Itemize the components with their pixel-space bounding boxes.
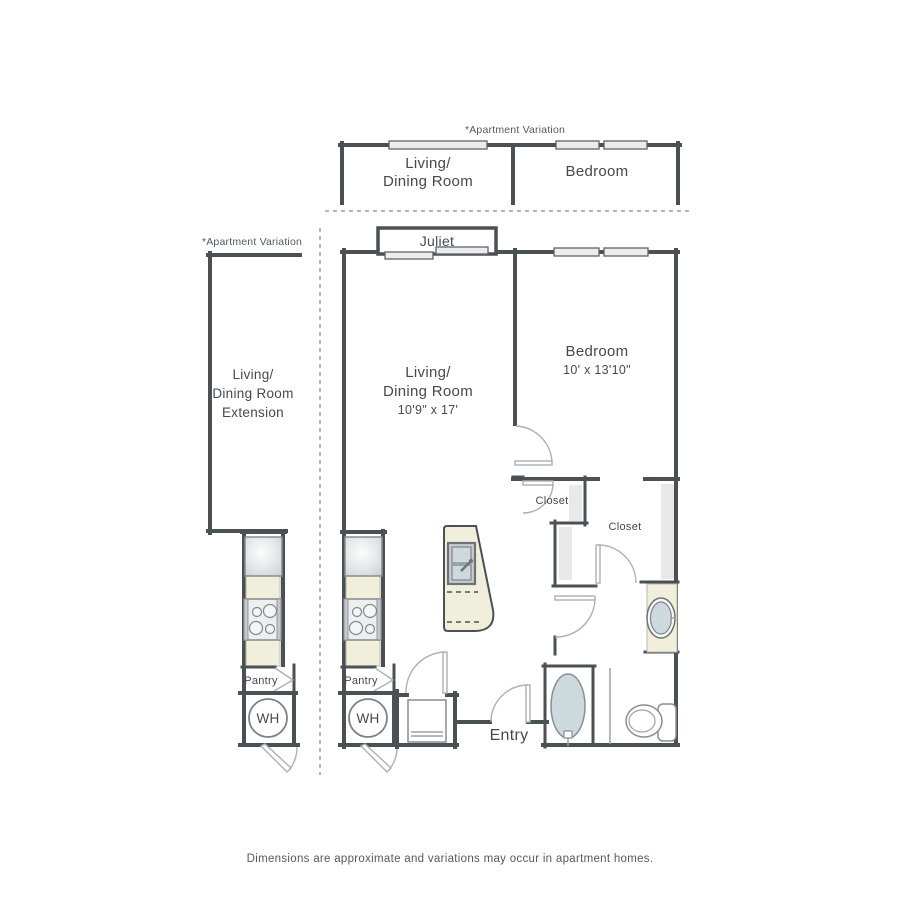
left-variation-note: *Apartment Variation (202, 236, 302, 248)
bedroom-dims: 10' x 13'10" (563, 363, 631, 377)
entry-label: Entry (490, 727, 529, 744)
laundry-closet (397, 652, 457, 747)
window (604, 248, 648, 256)
living-label2: Dining Room (383, 383, 473, 400)
window (436, 247, 488, 254)
extension-label3: Extension (222, 405, 284, 420)
closet-walkin-door (596, 545, 636, 583)
floorplan-canvas: *Apartment Variation Living/ Dining Room… (0, 0, 900, 900)
bedroom-label: Bedroom (566, 343, 629, 360)
floorplan-page: *Apartment Variation Living/ Dining Room… (0, 0, 900, 900)
bathroom-vanity (647, 584, 677, 652)
kitchen-island (444, 526, 493, 631)
top-variation-living-label2: Dining Room (383, 173, 473, 190)
main-unit: Juliet (340, 228, 678, 772)
main-outer-walls (342, 250, 678, 747)
bathtub (551, 674, 585, 746)
main-kitchen-column (340, 531, 398, 772)
variation-wh-label: WH (256, 711, 279, 726)
window (556, 141, 599, 149)
entry-door (491, 685, 530, 722)
disclaimer-text: Dimensions are approximate and variation… (247, 853, 654, 865)
closet-rod (569, 485, 582, 521)
extension-label1: Living/ (232, 367, 273, 382)
laundry-door-leaf (443, 652, 447, 693)
variation-kitchen-column (240, 531, 298, 772)
window (385, 252, 433, 259)
window (604, 141, 647, 149)
variation-pantry-label: Pantry (244, 675, 278, 687)
bathroom-door (555, 596, 595, 637)
toilet (626, 704, 676, 741)
left-variation: *Apartment Variation Living/ Dining Room… (202, 236, 302, 772)
extension-label2: Dining Room (212, 386, 293, 401)
top-variation-note: *Apartment Variation (465, 124, 565, 136)
tub-faucet (564, 731, 572, 738)
top-variation: *Apartment Variation Living/ Dining Room… (325, 124, 690, 211)
closet-rod (661, 484, 674, 579)
closet-rod (559, 527, 572, 580)
top-variation-living-label: Living/ (405, 155, 451, 172)
closet-walkin-label: Closet (609, 521, 642, 533)
wh-label: WH (356, 711, 379, 726)
window (554, 248, 599, 256)
bedroom-door (515, 426, 552, 465)
top-variation-bedroom-label: Bedroom (566, 163, 629, 180)
window (389, 141, 487, 149)
living-label1: Living/ (405, 364, 451, 381)
pantry-label: Pantry (344, 675, 378, 687)
living-dims: 10'9" x 17' (398, 403, 458, 417)
laundry-door-arc (406, 652, 445, 693)
closet-small-label: Closet (536, 495, 569, 507)
